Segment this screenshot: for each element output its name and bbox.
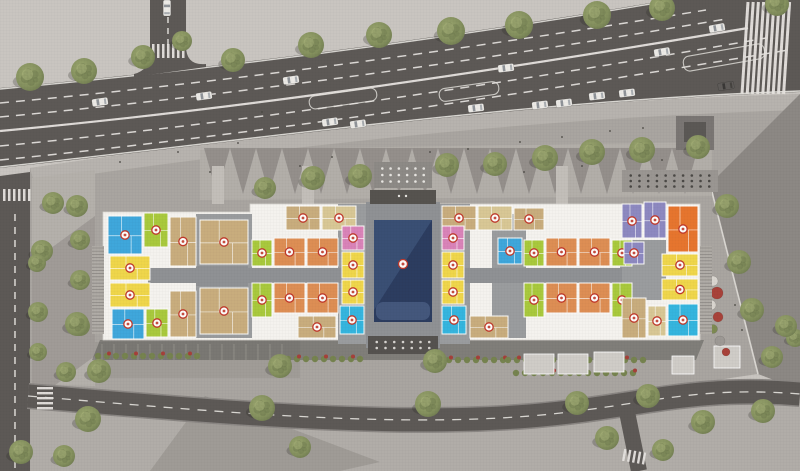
render-grid-texture: [0, 0, 800, 471]
texture-overlay: [0, 0, 800, 471]
site-plan-rendering: [0, 0, 800, 471]
master-plan-canvas: [0, 0, 800, 471]
